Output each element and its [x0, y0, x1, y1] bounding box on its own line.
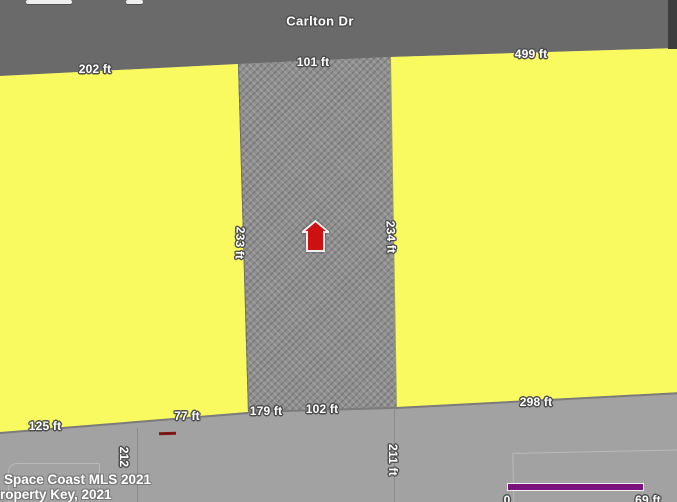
parcel-boundary-line: [137, 428, 138, 502]
measurement-bottom-center-left: 179 ft: [250, 405, 283, 417]
measurement-lower-left-vertical: 212: [118, 447, 130, 468]
street-label: Carlton Dr: [286, 15, 354, 28]
measurement-bottom-far-left: 125 ft: [29, 420, 62, 432]
road-edge-strip: [668, 0, 677, 49]
red-boundary-mark: [159, 432, 176, 435]
measurement-bottom-left: 77 ft: [174, 410, 200, 422]
cut-off-label-fragment: [126, 0, 143, 4]
parcel-map-canvas[interactable]: Carlton Dr 202 ft 101 ft 499 ft 233 ft 2…: [0, 0, 677, 502]
measurement-top-left: 202 ft: [79, 63, 112, 75]
measurement-side-left: 233 ft: [233, 227, 246, 260]
measurement-top-center: 101 ft: [297, 56, 330, 68]
measurement-bottom-center-right: 102 ft: [306, 403, 339, 415]
cut-off-label-fragment: [26, 0, 72, 4]
measurement-top-right: 499 ft: [515, 48, 548, 60]
house-icon: [302, 220, 329, 257]
scale-bar: [507, 483, 644, 491]
scale-bar-min-label: 0: [504, 494, 511, 502]
measurement-lower-center-vertical: 211 ft: [387, 444, 399, 476]
watermark-line2: Property Key, 2021: [0, 488, 112, 502]
measurement-bottom-right: 298 ft: [520, 396, 553, 408]
watermark-line1: Space Coast MLS 2021: [4, 473, 151, 488]
scale-bar-max-label: 69 ft: [635, 494, 661, 502]
measurement-side-right: 234 ft: [384, 221, 397, 254]
